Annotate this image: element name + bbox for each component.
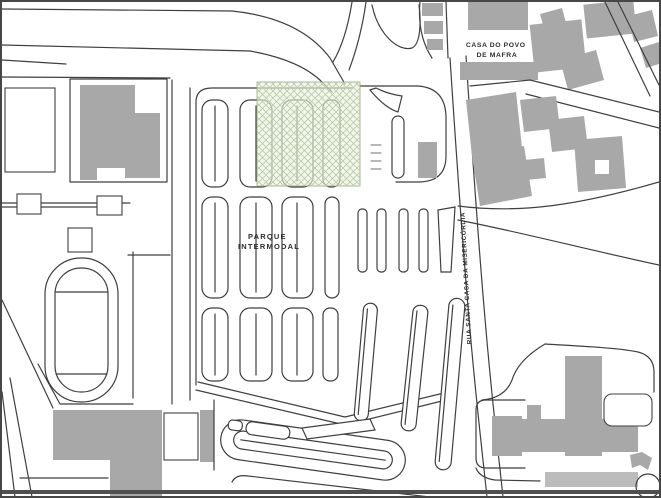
parking-island (325, 197, 339, 298)
site-plan-map: PARQUE INTERMODAL CASA DO POVO DE MAFRA … (0, 0, 661, 498)
highlight-area (257, 82, 360, 186)
east-building-cluster (458, 92, 659, 265)
athletics-track (38, 258, 133, 404)
hospital-area (476, 344, 659, 496)
roadside-buildings (422, 3, 443, 50)
thin-parking-stalls (358, 207, 455, 272)
bus-terminal (218, 417, 430, 496)
casa-do-povo-label: CASA DO POVO DE MAFRA (466, 42, 528, 59)
parking-island (323, 308, 338, 381)
bottom-frame-band (2, 490, 659, 494)
gray-building (80, 85, 160, 180)
parking-islands-row-3 (202, 308, 338, 381)
gray-building-large (53, 410, 162, 496)
left-parcels (2, 79, 170, 398)
top-road (2, 9, 345, 92)
loop-road (360, 86, 446, 182)
map-canvas: PARQUE INTERMODAL CASA DO POVO DE MAFRA … (2, 2, 659, 496)
building-outline (5, 88, 55, 172)
west-road (172, 80, 190, 404)
